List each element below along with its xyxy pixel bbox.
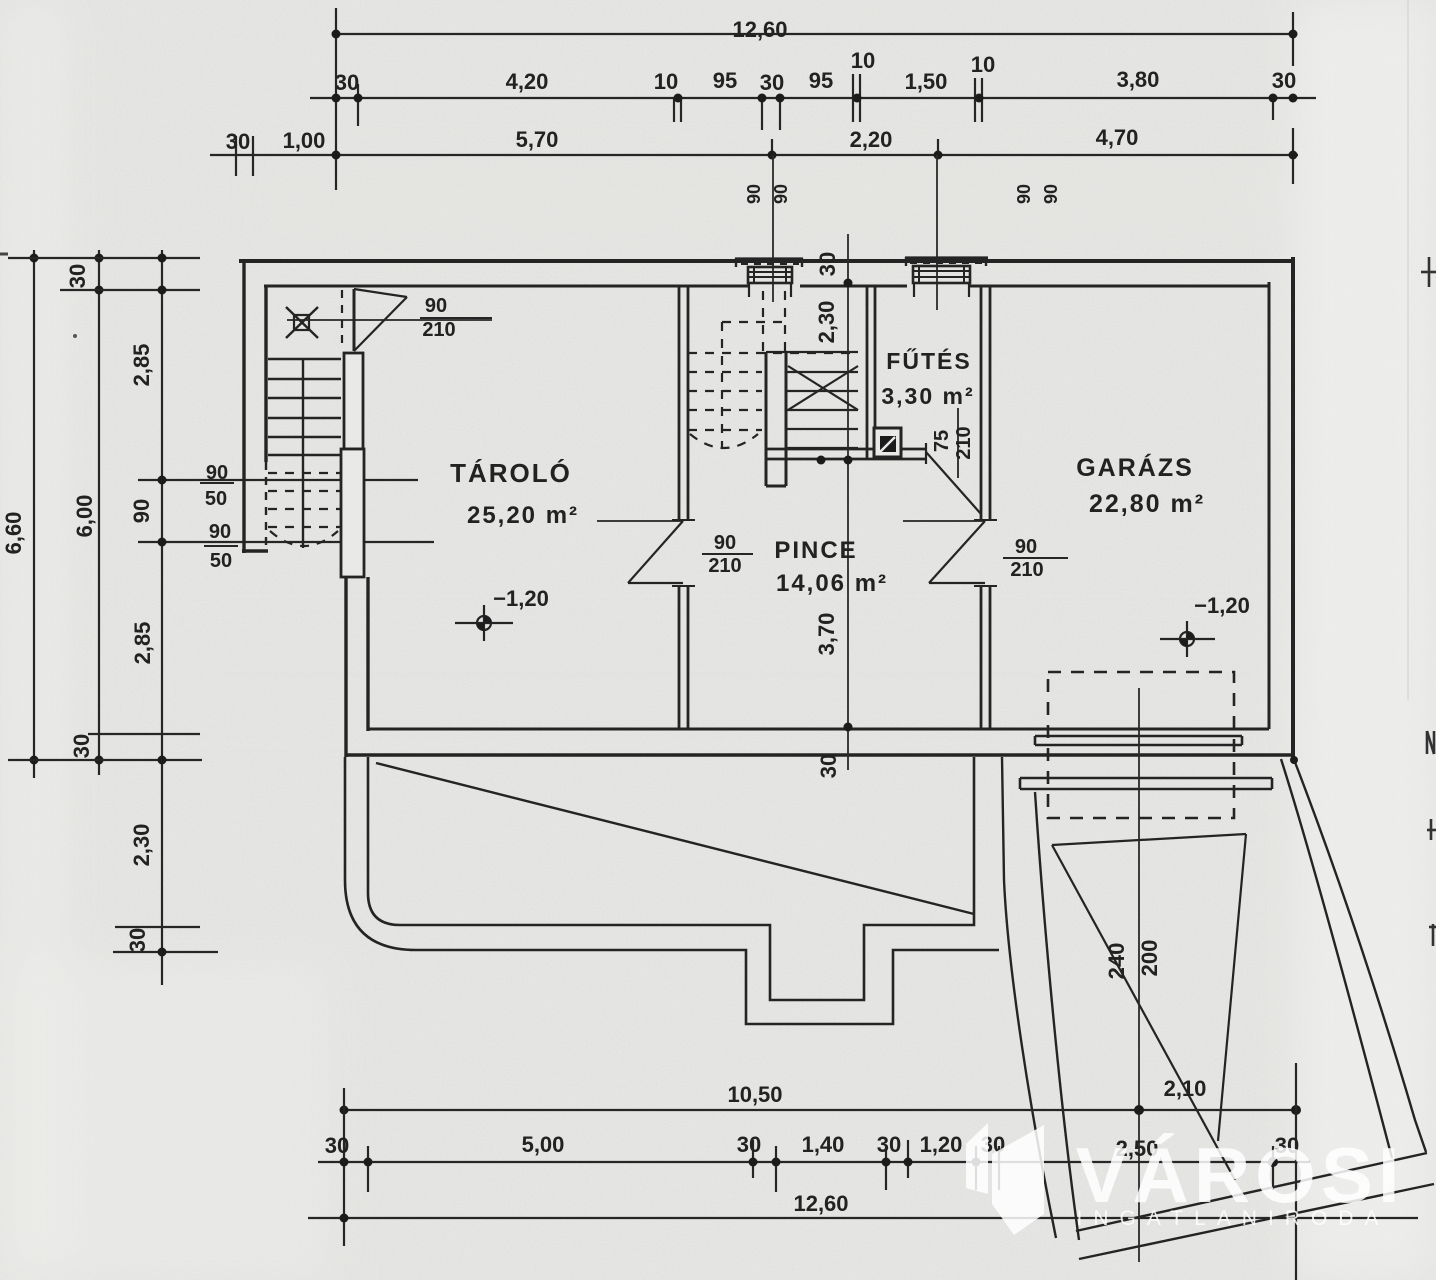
svg-text:30: 30	[69, 734, 94, 758]
svg-text:1,20: 1,20	[920, 1132, 963, 1157]
svg-text:210: 210	[953, 426, 975, 459]
svg-text:95: 95	[809, 68, 833, 93]
svg-text:50: 50	[205, 488, 227, 510]
svg-text:FŰTÉS: FŰTÉS	[886, 347, 971, 374]
svg-text:VÁROSI: VÁROSI	[1075, 1131, 1404, 1219]
svg-text:6,00: 6,00	[72, 495, 97, 538]
svg-text:90: 90	[425, 295, 447, 317]
svg-text:50: 50	[210, 550, 232, 572]
svg-text:1,00: 1,00	[283, 128, 326, 153]
svg-text:30: 30	[877, 1132, 901, 1157]
svg-text:30: 30	[226, 129, 250, 154]
svg-text:90: 90	[714, 532, 736, 554]
svg-text:2,10: 2,10	[1164, 1076, 1207, 1101]
svg-text:4,20: 4,20	[506, 69, 549, 94]
svg-text:14,06 m²: 14,06 m²	[776, 570, 888, 597]
svg-text:12,60: 12,60	[793, 1191, 848, 1216]
svg-text:30: 30	[760, 70, 784, 95]
svg-text:22,80 m²: 22,80 m²	[1089, 490, 1205, 518]
svg-text:30: 30	[65, 264, 90, 288]
svg-text:30: 30	[737, 1132, 761, 1157]
svg-text:10,50: 10,50	[727, 1082, 782, 1107]
svg-text:90: 90	[1015, 536, 1037, 558]
svg-text:90: 90	[1014, 184, 1034, 204]
svg-text:90: 90	[771, 184, 791, 204]
svg-text:25,20 m²: 25,20 m²	[467, 502, 579, 529]
svg-text:30: 30	[1272, 68, 1296, 93]
svg-text:10: 10	[971, 52, 995, 77]
svg-text:5,00: 5,00	[522, 1132, 565, 1157]
svg-text:2,85: 2,85	[129, 344, 154, 387]
svg-text:4,70: 4,70	[1096, 125, 1139, 150]
svg-text:PINCE: PINCE	[774, 537, 857, 564]
svg-text:90: 90	[1041, 184, 1061, 204]
svg-text:1,50: 1,50	[905, 69, 948, 94]
svg-text:2,20: 2,20	[850, 127, 893, 152]
svg-text:TÁROLÓ: TÁROLÓ	[450, 458, 572, 488]
svg-text:210: 210	[708, 555, 741, 577]
svg-text:90: 90	[209, 521, 231, 543]
svg-text:3,80: 3,80	[1117, 67, 1160, 92]
svg-text:5,70: 5,70	[516, 127, 559, 152]
svg-text:30: 30	[325, 1133, 349, 1158]
svg-text:90: 90	[129, 499, 154, 523]
svg-text:90: 90	[744, 184, 764, 204]
svg-text:INGATLANIRODA: INGATLANIRODA	[1077, 1207, 1390, 1230]
svg-text:90: 90	[206, 462, 228, 484]
svg-text:240: 240	[1104, 943, 1129, 980]
svg-text:3,30 m²: 3,30 m²	[881, 383, 974, 409]
svg-text:2,85: 2,85	[130, 622, 155, 665]
svg-text:210: 210	[422, 319, 455, 341]
svg-text:75: 75	[931, 430, 953, 452]
svg-text:2,30: 2,30	[814, 301, 839, 344]
svg-text:30: 30	[335, 70, 359, 95]
svg-text:12,60: 12,60	[732, 17, 787, 42]
svg-text:−1,20: −1,20	[493, 586, 549, 611]
svg-text:GARÁZS: GARÁZS	[1076, 453, 1194, 482]
svg-text:−1,20: −1,20	[1194, 593, 1250, 618]
svg-text:30: 30	[125, 928, 150, 952]
svg-text:1,40: 1,40	[802, 1132, 845, 1157]
svg-text:10: 10	[851, 48, 875, 73]
svg-text:2,30: 2,30	[129, 824, 154, 867]
svg-text:200: 200	[1137, 940, 1162, 977]
svg-text:3,70: 3,70	[814, 613, 839, 656]
svg-text:30: 30	[815, 252, 840, 276]
svg-text:30: 30	[816, 754, 841, 778]
svg-text:95: 95	[713, 68, 737, 93]
svg-text:210: 210	[1010, 559, 1043, 581]
svg-text:10: 10	[654, 69, 678, 94]
svg-text:6,60: 6,60	[1, 512, 26, 555]
